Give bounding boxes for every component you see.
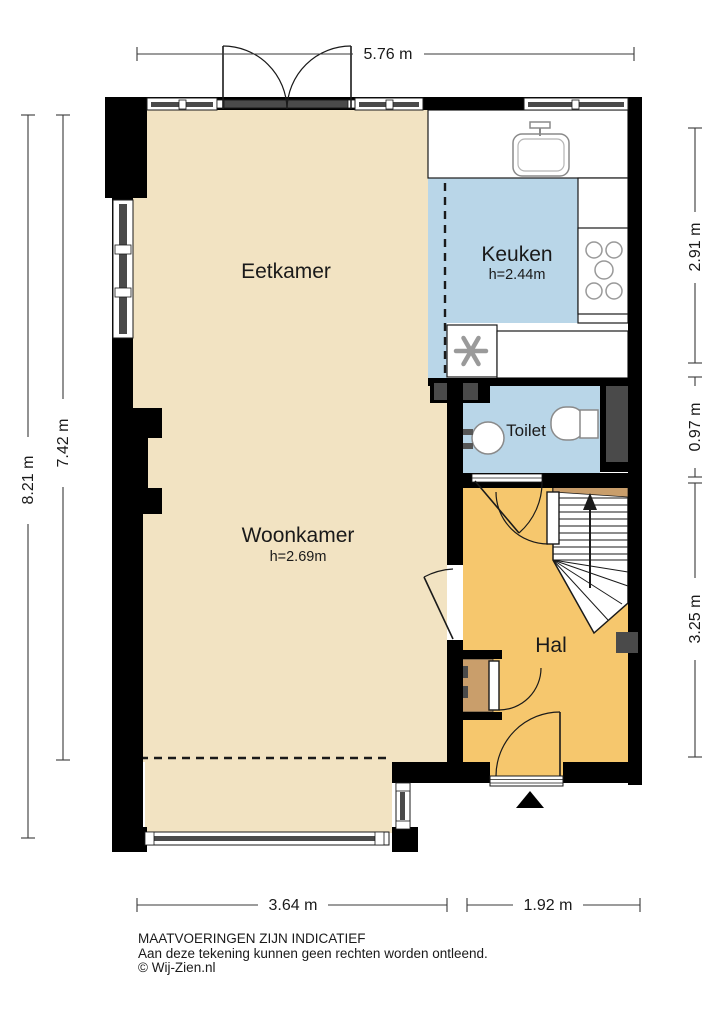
label-woonkamer-height: h=2.69m	[270, 549, 327, 565]
window-bay-front	[145, 832, 389, 845]
footer-disclaimer-body: Aan deze tekening kunnen geen rechten wo…	[138, 946, 488, 961]
dim-left-inner-label: 7.42 m	[55, 419, 72, 468]
meter-cupboard-door-leaf	[489, 661, 499, 710]
label-eetkamer: Eetkamer	[241, 260, 331, 283]
dim-left-outer: 8.21 m	[20, 115, 37, 838]
basin-icon	[472, 422, 504, 454]
dim-left-inner: 7.42 m	[55, 115, 72, 760]
wall-bay-left-corner	[112, 827, 147, 852]
floors	[133, 110, 628, 833]
dim-bottom-left-label: 3.64 m	[269, 897, 318, 914]
burner-icon	[606, 283, 622, 299]
dim-bottom-right: 1.92 m	[467, 897, 640, 914]
stairs-door-leaf	[547, 492, 559, 544]
basin-tap-icon	[463, 429, 473, 435]
label-keuken: Keuken	[481, 243, 552, 266]
floor-living-dining	[133, 110, 447, 833]
label-woonkamer: Woonkamer	[242, 524, 355, 547]
burner-icon	[595, 261, 613, 279]
burner-icon	[586, 283, 602, 299]
dim-right-middle-label: 0.97 m	[687, 403, 704, 452]
sink-tap-icon	[530, 122, 550, 128]
dim-right-top: 2.91 m	[687, 128, 704, 363]
dim-right-top-label: 2.91 m	[687, 223, 704, 272]
wall-bay-right-corner	[392, 827, 418, 852]
window-left-wall	[113, 200, 133, 338]
chimney-top	[112, 408, 162, 438]
burner-icon	[606, 242, 622, 258]
window-bay-side	[396, 783, 410, 829]
dim-right-bottom: 3.25 m	[687, 483, 704, 757]
window-kitchen	[524, 98, 628, 110]
footer: MAATVOERINGEN ZIJN INDICATIEF Aan deze t…	[138, 931, 488, 975]
chimney-mid	[112, 438, 148, 488]
floorplan-page: Eetkamer Keuken h=2.44m Woonkamer h=2.69…	[0, 0, 720, 1017]
burner-icon	[586, 242, 602, 258]
niche-hall-right	[616, 632, 638, 653]
window-top-left	[147, 98, 217, 110]
wall-left-lower	[112, 514, 143, 827]
window-top-mid	[355, 98, 423, 110]
wall-living-hall-upper	[447, 380, 463, 565]
footer-disclaimer-title: MAATVOERINGEN ZIJN INDICATIEF	[138, 931, 366, 946]
dim-right-bottom-label: 3.25 m	[687, 595, 704, 644]
label-hal: Hal	[535, 634, 567, 657]
dim-right-middle: 0.97 m	[687, 377, 704, 477]
dim-bottom-left: 3.64 m	[137, 897, 447, 914]
entrance-arrow-icon	[516, 791, 544, 808]
label-toilet: Toilet	[506, 421, 546, 440]
chimney-bottom	[112, 488, 162, 514]
dim-top: 5.76 m	[137, 46, 634, 63]
floorplan-drawing: Eetkamer Keuken h=2.44m Woonkamer h=2.69…	[0, 0, 720, 1017]
dim-left-outer-label: 8.21 m	[20, 456, 37, 505]
basin-tap-icon	[463, 443, 473, 449]
kitchen-counter-bottom	[497, 331, 628, 378]
footer-copyright: © Wij-Zien.nl	[138, 960, 215, 975]
shaft-toilet-right	[606, 386, 628, 462]
dim-top-label: 5.76 m	[364, 46, 413, 63]
wall-meter-cupboard-top	[448, 650, 502, 659]
wall-meter-cupboard-bottom	[448, 712, 502, 720]
dim-bottom-right-label: 1.92 m	[524, 897, 573, 914]
label-keuken-height: h=2.44m	[489, 267, 546, 283]
toilet-cistern-icon	[580, 410, 598, 438]
